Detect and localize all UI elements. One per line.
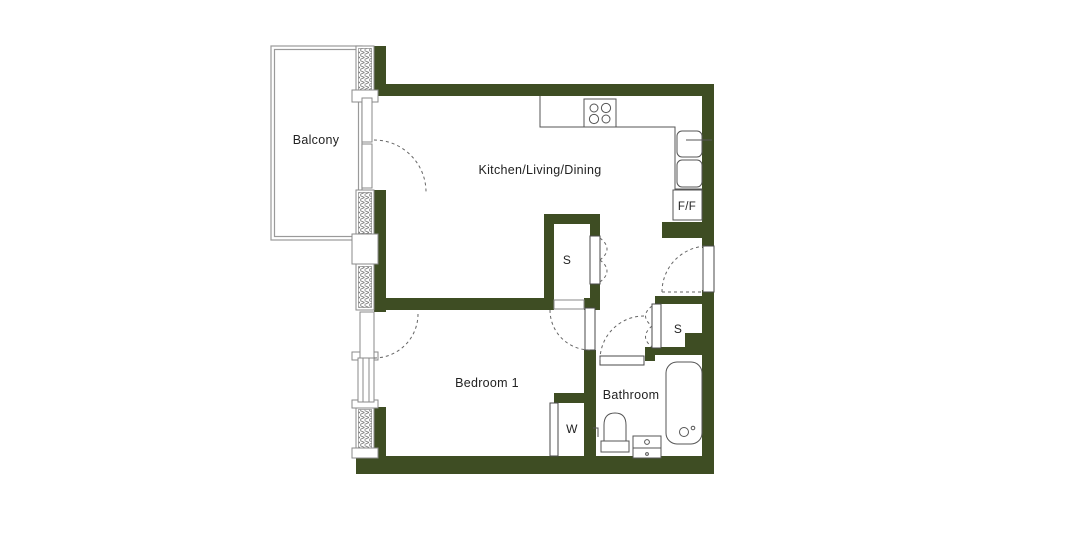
wardrobe-door-icon xyxy=(550,403,558,456)
room-label-bedroom-1: Bedroom 1 xyxy=(455,376,519,390)
window-icon xyxy=(356,190,374,236)
room-label-balcony: Balcony xyxy=(293,133,340,147)
bathroom-door-icon xyxy=(600,316,644,365)
bedroom-window-door-icon xyxy=(360,312,418,358)
window-icon xyxy=(356,46,374,96)
bathroom-fixtures xyxy=(593,362,702,458)
labels: Balcony Kitchen/Living/Dining Bedroom 1 … xyxy=(293,133,696,436)
label-storage-hall: S xyxy=(563,253,571,267)
entrance-door-icon xyxy=(662,246,714,292)
basin-icon xyxy=(633,436,661,458)
label-storage-entry: S xyxy=(674,322,682,336)
walls xyxy=(356,46,714,474)
hob-4-ring-icon xyxy=(584,99,616,127)
label-wardrobe: W xyxy=(566,422,578,436)
toilet-icon xyxy=(593,413,629,452)
label-fridge-freezer: F/F xyxy=(678,201,696,213)
glazing-panel xyxy=(358,358,374,402)
doors xyxy=(360,98,714,456)
bathtub-icon xyxy=(666,362,702,444)
floor-plan-drawing: Balcony Kitchen/Living/Dining Bedroom 1 … xyxy=(0,0,1068,542)
storage-entry-door-icon xyxy=(646,304,662,348)
balcony-door-icon xyxy=(362,98,426,192)
floor-plan-page: Balcony Kitchen/Living/Dining Bedroom 1 … xyxy=(0,0,1068,542)
window-icon xyxy=(356,264,374,310)
storage-hall-door-icon xyxy=(590,236,607,284)
room-label-bathroom: Bathroom xyxy=(603,388,660,402)
bedroom-door-icon xyxy=(550,300,595,350)
room-label-kitchen-living-dining: Kitchen/Living/Dining xyxy=(478,163,601,177)
